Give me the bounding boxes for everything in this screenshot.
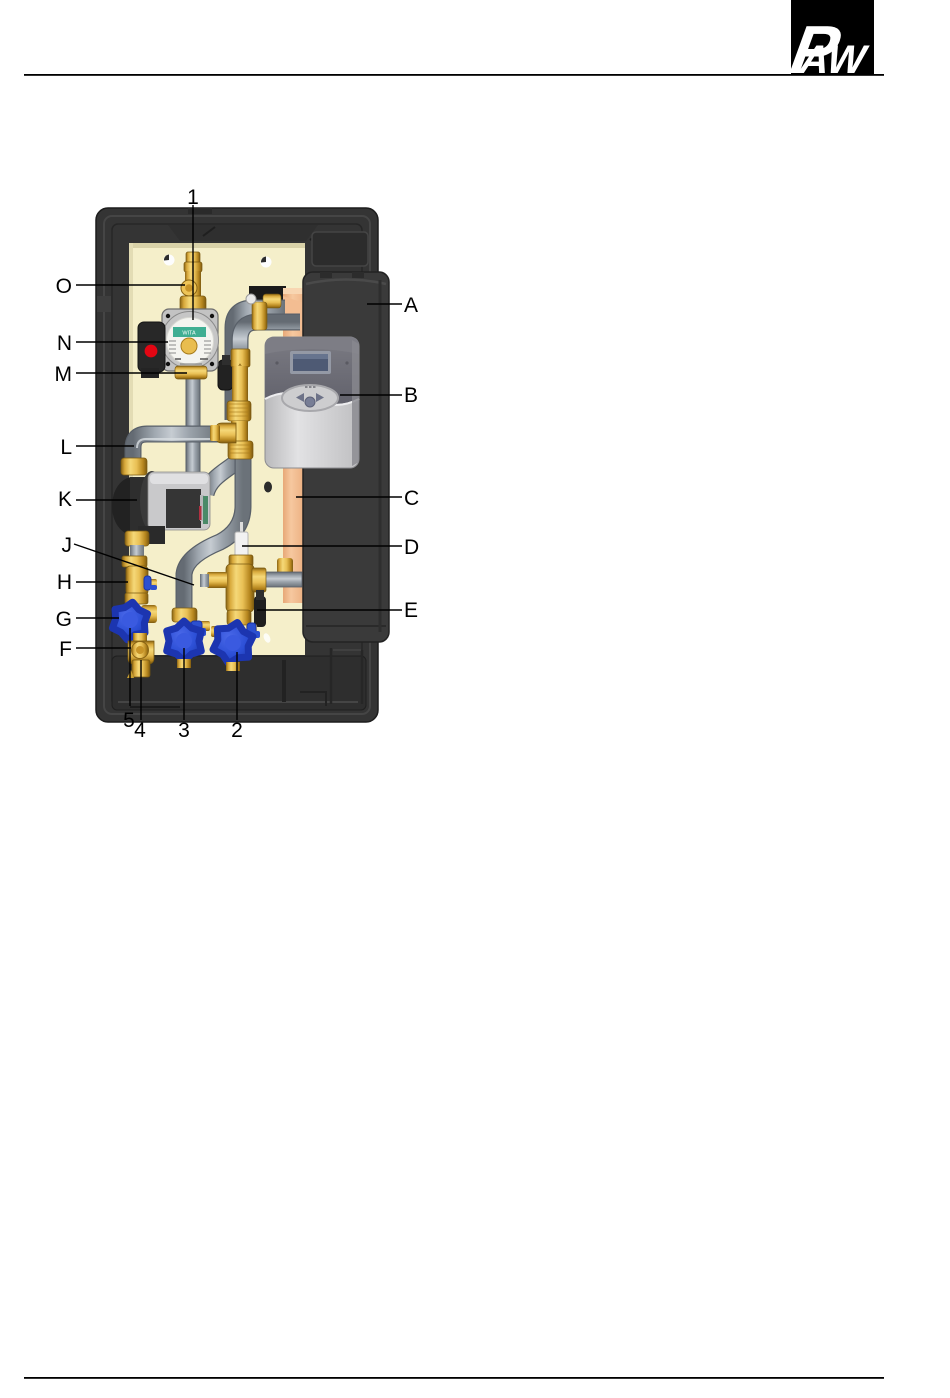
- svg-text:O: O: [56, 275, 72, 298]
- svg-text:L: L: [60, 436, 72, 459]
- svg-text:A: A: [404, 294, 418, 317]
- svg-text:J: J: [62, 534, 73, 557]
- svg-text:1: 1: [187, 186, 199, 209]
- svg-text:D: D: [404, 536, 419, 559]
- svg-text:3: 3: [178, 719, 190, 742]
- svg-text:H: H: [57, 571, 72, 594]
- svg-text:K: K: [58, 488, 72, 511]
- svg-text:M: M: [55, 363, 73, 386]
- svg-text:5: 5: [123, 709, 135, 732]
- svg-text:N: N: [57, 332, 72, 355]
- svg-text:4: 4: [134, 719, 146, 742]
- svg-text:WITA: WITA: [182, 331, 196, 337]
- svg-text:2: 2: [231, 719, 243, 742]
- svg-text:C: C: [404, 487, 419, 510]
- svg-text:F: F: [59, 638, 72, 661]
- svg-text:E: E: [404, 599, 418, 622]
- svg-text:G: G: [56, 608, 72, 631]
- svg-text:B: B: [404, 384, 418, 407]
